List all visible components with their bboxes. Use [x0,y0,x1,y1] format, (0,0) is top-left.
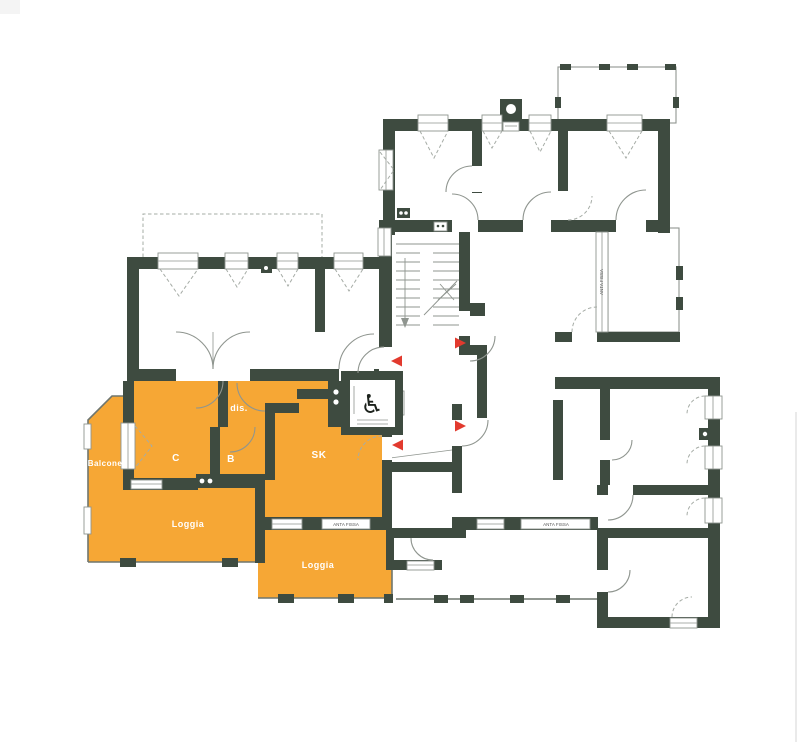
window-annotation: ANTA FISSA [599,269,604,295]
window-annotation: ANTA FISSA [333,522,359,527]
window-annotation: ANTA FISSA [543,522,569,527]
entrance-arrow-left [392,440,403,451]
room-label-balcone: Balcone [88,459,123,468]
room-label-c: C [172,453,180,464]
floor-plan-drawing: BalconeCBdis.SKLoggiaLoggiaANTA FISSAANT… [0,0,800,742]
room-label-sk: SK [312,450,327,461]
corner-artifact [0,0,20,14]
entrance-arrow-left [391,356,402,367]
floor-plan-page: BalconeCBdis.SKLoggiaLoggiaANTA FISSAANT… [0,0,800,742]
room-label-loggia: Loggia [172,519,205,529]
stairwell [396,240,459,333]
room-label-b: B [227,454,235,465]
room-label-loggia: Loggia [302,560,335,570]
section-line [390,450,452,458]
terrace-mid-right [608,228,679,332]
room-label-dis: dis. [230,403,248,413]
wheelchair-icon: ♿ [360,390,383,420]
balcony-dashed-outline [143,214,322,257]
